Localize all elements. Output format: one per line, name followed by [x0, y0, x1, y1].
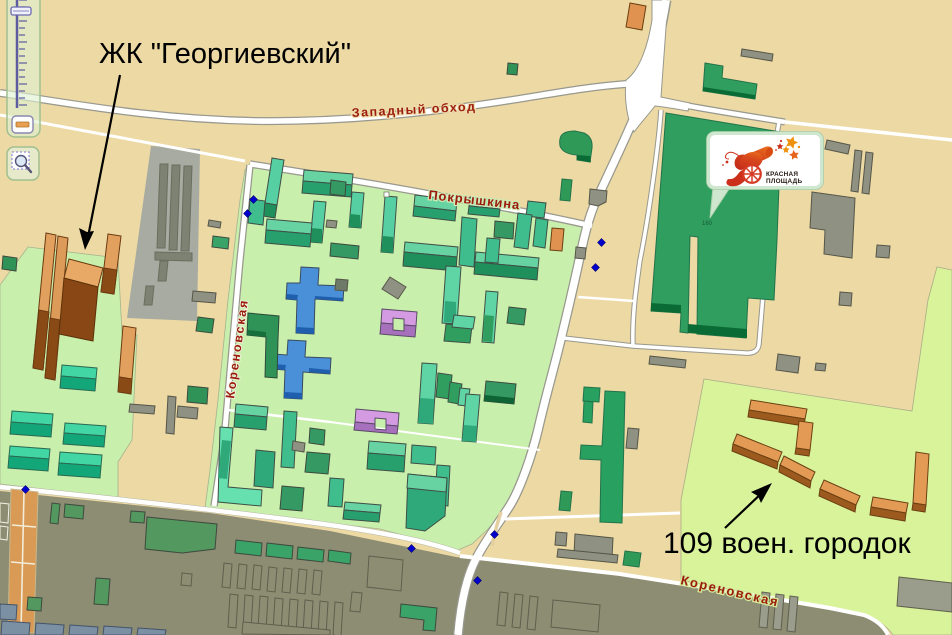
svg-text:109 воен. городок: 109 воен. городок [663, 527, 911, 560]
svg-text:160: 160 [702, 221, 713, 227]
svg-text:ПЛОЩАДЬ: ПЛОЩАДЬ [766, 178, 802, 185]
svg-text:ЖК "Георгиевский": ЖК "Георгиевский" [99, 38, 351, 70]
svg-text:КРАСНАЯ: КРАСНАЯ [766, 171, 798, 178]
